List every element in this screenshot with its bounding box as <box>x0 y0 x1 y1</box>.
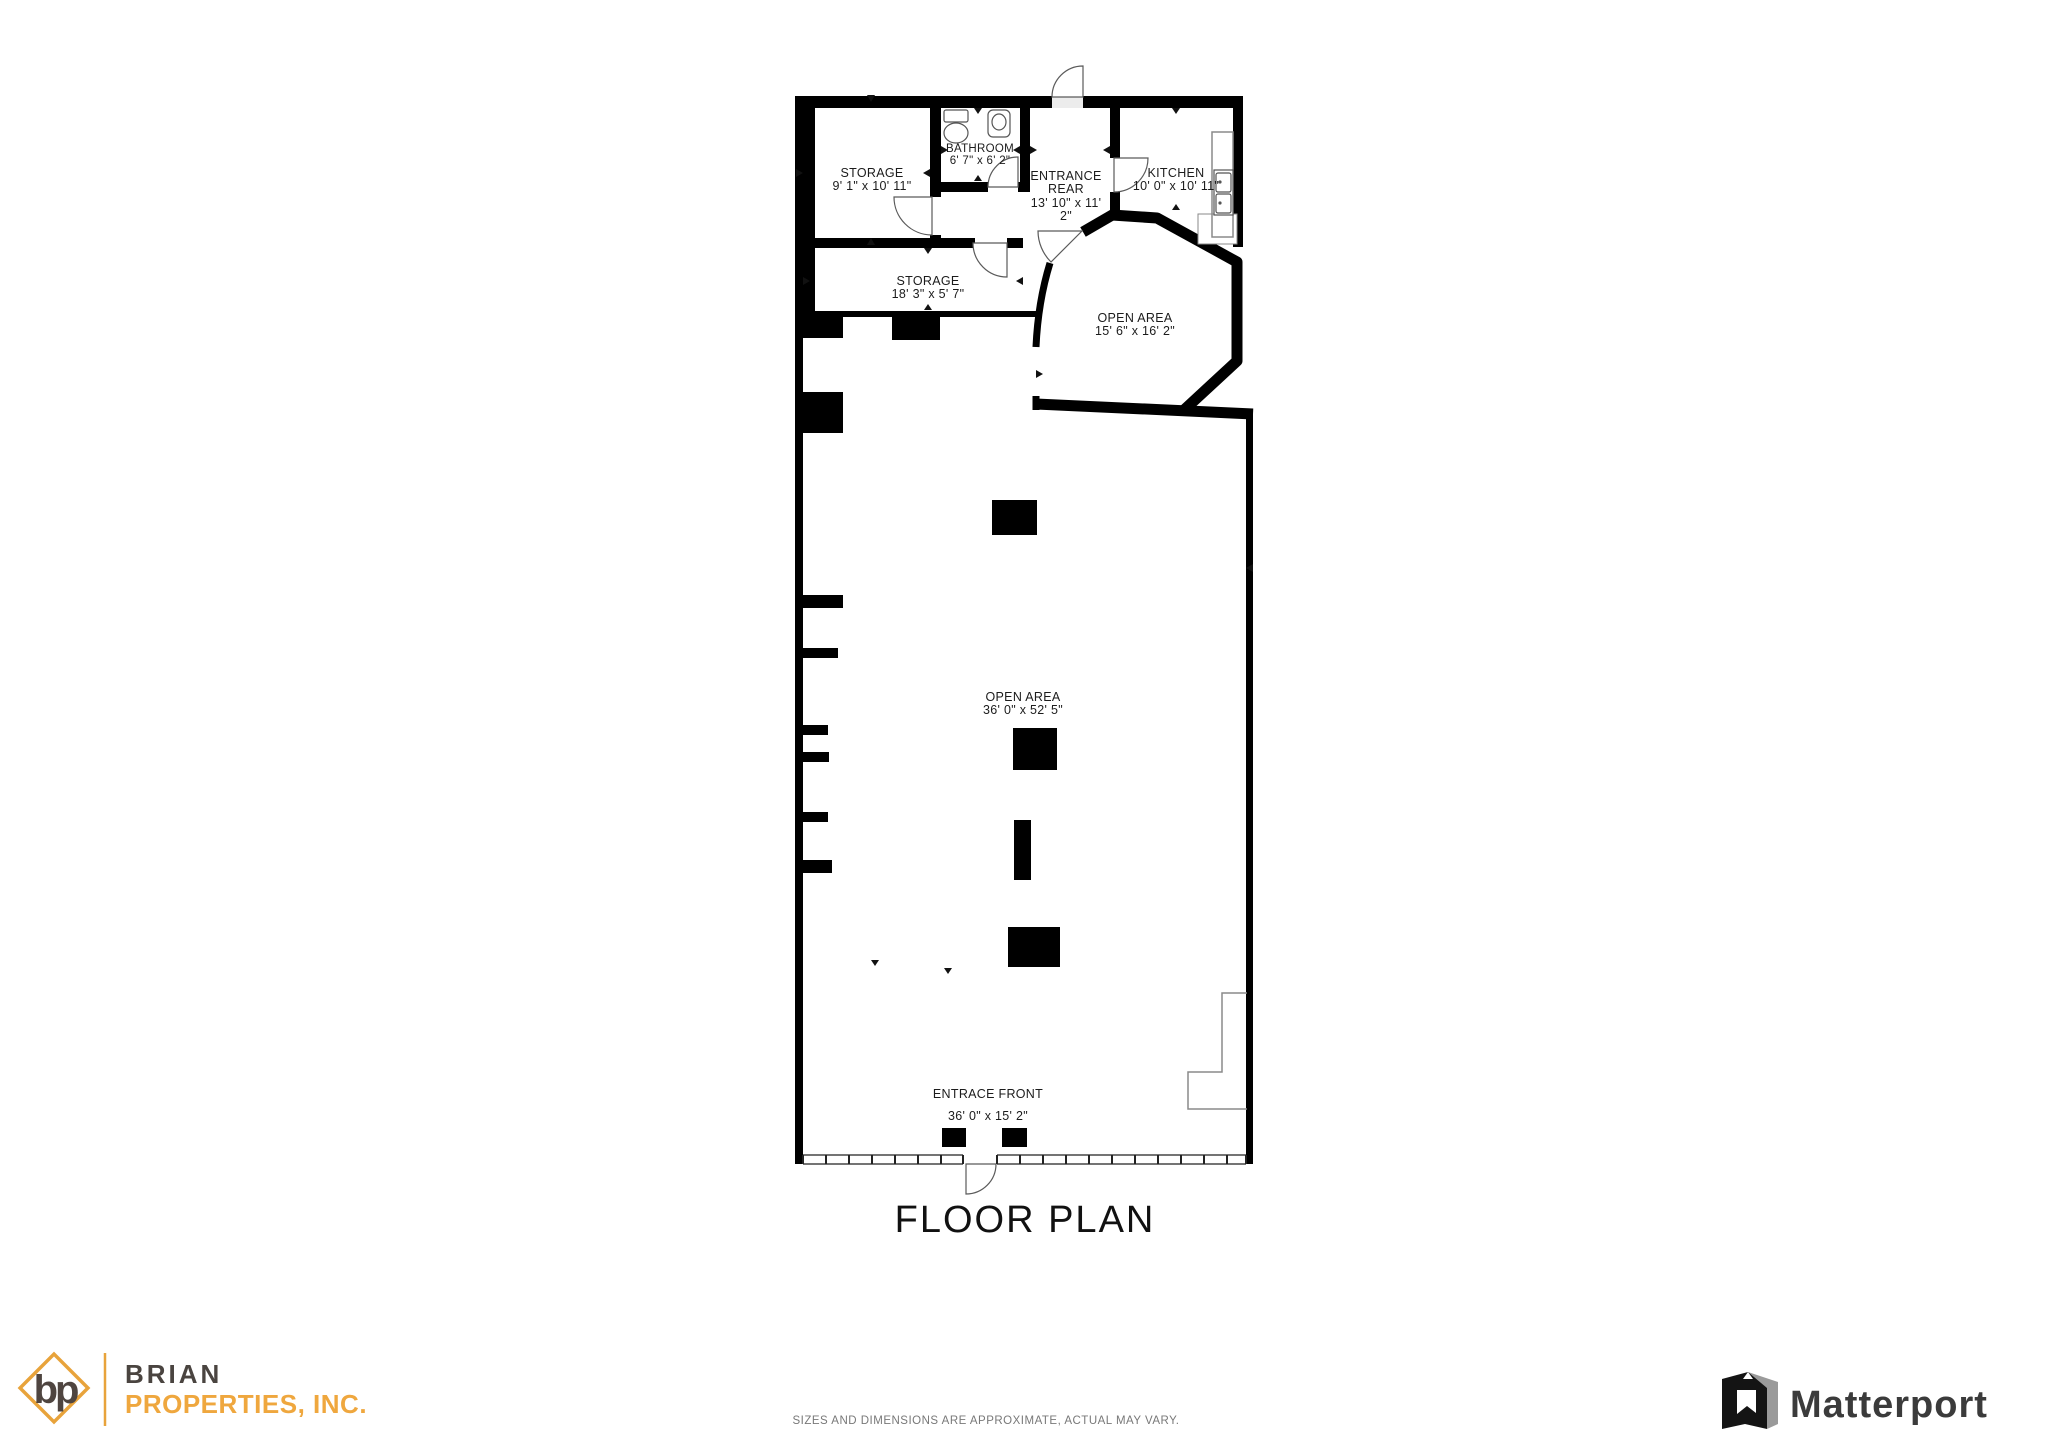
room-label-bathroom: BATHROOM <box>946 143 1014 155</box>
front-steps <box>1188 993 1247 1109</box>
matterport-icon <box>1722 1372 1778 1429</box>
storage-top-door <box>894 197 932 235</box>
room-label-kitchen: KITCHEN <box>1148 166 1205 180</box>
room-dims-storage-top: 9' 1" x 10' 11" <box>832 179 911 193</box>
room-dims-kitchen: 10' 0" x 10' 11" <box>1133 179 1219 193</box>
front-entrance-door <box>966 1164 996 1194</box>
room-dims-entrance-front: 36' 0" x 15' 2" <box>948 1109 1028 1123</box>
floor-plan-page: STORAGE 9' 1" x 10' 11" BATHROOM 6' 7" x… <box>0 0 2048 1448</box>
room-label-entrance-rear-2: REAR <box>1048 182 1084 196</box>
room-label-storage-top: STORAGE <box>841 166 904 180</box>
doors <box>894 66 1148 1194</box>
matterport-label: Matterport <box>1790 1384 1988 1426</box>
faucet-dot-2 <box>1218 201 1221 204</box>
kitchen-closet <box>1198 214 1237 244</box>
broker-monogram: bp <box>34 1368 78 1412</box>
matterport-logo: Matterport <box>1722 1372 1988 1429</box>
storefront-windows <box>803 1155 1246 1164</box>
room-dims-entrance-rear-1: 13' 10" x 11' <box>1031 196 1102 210</box>
open-area-door <box>1038 231 1082 262</box>
room-dims-open-area-small: 15' 6" x 16' 2" <box>1095 324 1175 338</box>
room-label-storage-long: STORAGE <box>897 274 960 288</box>
bathroom-fixtures <box>944 110 1010 143</box>
room-labels: STORAGE 9' 1" x 10' 11" BATHROOM 6' 7" x… <box>832 143 1219 1123</box>
rear-entrance-door <box>1052 66 1083 97</box>
room-label-open-area-large: OPEN AREA <box>986 690 1061 704</box>
toilet-tank-icon <box>944 110 968 122</box>
bathroom-sink-basin-icon <box>992 114 1006 130</box>
broker-name-line2: PROPERTIES, INC. <box>125 1389 367 1419</box>
room-dims-open-area-large: 36' 0" x 52' 5" <box>983 703 1063 717</box>
broker-logo: bp BRIAN PROPERTIES, INC. <box>20 1353 367 1426</box>
broker-name-line1: BRIAN <box>125 1359 222 1389</box>
floor-plan-drawing: STORAGE 9' 1" x 10' 11" BATHROOM 6' 7" x… <box>0 0 2048 1448</box>
storage-long-door <box>973 243 1007 277</box>
room-dims-entrance-rear-2: 2" <box>1060 209 1072 223</box>
room-dims-bathroom: 6' 7" x 6' 2" <box>950 155 1011 167</box>
room-label-open-area-small: OPEN AREA <box>1098 311 1173 325</box>
walls <box>795 96 1253 1164</box>
room-label-entrance-front: ENTRACE FRONT <box>933 1087 1043 1101</box>
room-label-entrance-rear-1: ENTRANCE <box>1030 169 1101 183</box>
toilet-bowl-icon <box>944 123 968 143</box>
room-dims-storage-long: 18' 3" x 5' 7" <box>892 287 965 301</box>
disclaimer-text: SIZES AND DIMENSIONS ARE APPROXIMATE, AC… <box>792 1415 1179 1427</box>
page-title: FLOOR PLAN <box>895 1199 1156 1241</box>
kitchen-sink-2-icon <box>1216 194 1231 213</box>
rear-door-threshold <box>1052 97 1083 108</box>
